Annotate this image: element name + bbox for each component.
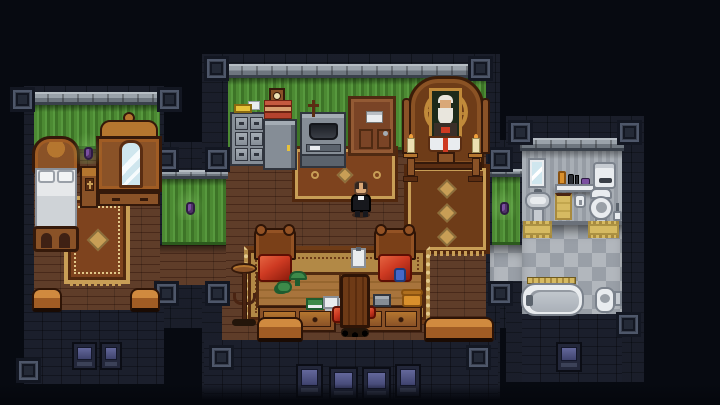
wall-sconce[interactable]	[84, 147, 93, 160]
blue-jar[interactable]	[394, 268, 406, 282]
copier-slot	[309, 123, 338, 140]
priest-leg	[355, 211, 360, 217]
bathroom-mirror	[528, 158, 546, 188]
window-glass	[561, 347, 577, 361]
clipboard-clip	[356, 247, 361, 251]
wardrobe[interactable]	[96, 112, 162, 208]
pillow	[57, 170, 74, 183]
drawer	[385, 311, 418, 327]
cistern[interactable]	[593, 162, 616, 189]
stand-base	[468, 176, 483, 182]
sink-basin	[525, 192, 551, 209]
mirror-glass	[532, 162, 542, 184]
bath-mat	[588, 221, 619, 238]
wall-tower	[16, 358, 41, 383]
drawer	[235, 132, 248, 145]
drawer-handle	[112, 198, 120, 201]
lamp-base	[295, 280, 300, 286]
door[interactable]	[348, 96, 396, 156]
priest-hair	[355, 182, 359, 189]
drawer	[250, 117, 263, 130]
bathroom-wall-cap	[520, 138, 624, 151]
bench[interactable]	[424, 317, 494, 342]
chair-casters	[341, 328, 369, 337]
wardrobe-drawer	[98, 192, 160, 206]
telephone[interactable]	[401, 289, 424, 308]
clipboard[interactable]	[351, 248, 366, 268]
cross-icon-arm	[87, 183, 93, 185]
copier-label	[310, 146, 320, 150]
window-sill	[105, 362, 117, 366]
rug-dot	[311, 171, 319, 179]
priest-collar	[358, 196, 364, 200]
wall-tower	[157, 87, 182, 112]
stand-hook	[247, 293, 256, 305]
bidet[interactable]	[595, 285, 622, 316]
paper-core	[579, 200, 582, 205]
wall-tower	[488, 147, 513, 172]
toilet-seat-hole	[596, 202, 607, 213]
hand-towel[interactable]	[555, 193, 572, 220]
paper-tray-stack[interactable]	[264, 100, 292, 120]
wall-tower	[10, 87, 35, 112]
candle-stand[interactable]	[402, 134, 419, 186]
wall-cross-icon-arm	[308, 104, 319, 107]
green-ledger[interactable]	[306, 298, 324, 310]
wall-tower	[508, 120, 533, 145]
bench[interactable]	[130, 288, 160, 312]
priest-character[interactable]	[348, 180, 374, 220]
footboard-arch	[41, 233, 52, 248]
cross-plaque	[85, 178, 94, 191]
bathtub[interactable]	[521, 283, 584, 316]
drawer	[250, 148, 263, 161]
cabinet-handle	[287, 145, 290, 151]
elder-portrait	[429, 88, 462, 140]
drawer	[235, 148, 248, 161]
wall-tower	[466, 345, 491, 370]
banker-lamp[interactable]	[289, 271, 309, 289]
desk-chair-front[interactable]	[332, 272, 376, 340]
photocopier[interactable]	[300, 112, 346, 168]
toiletry-bottle[interactable]	[558, 171, 566, 185]
bench[interactable]	[257, 317, 303, 342]
rug-medallion	[437, 179, 457, 199]
tub-basin	[529, 290, 579, 312]
window	[72, 342, 97, 370]
wall-tower	[209, 345, 234, 370]
wall-tower	[204, 56, 229, 81]
bed-footboard	[33, 226, 79, 252]
hat-stand[interactable]	[229, 263, 259, 335]
candle	[407, 138, 415, 153]
wall-tower	[205, 147, 230, 172]
tray	[264, 112, 292, 119]
toilet-paper[interactable]	[574, 194, 586, 208]
window-sill	[561, 363, 577, 367]
pedestal-sink[interactable]	[525, 189, 551, 225]
drawer	[250, 132, 263, 145]
candle	[472, 138, 480, 153]
tall-cabinet[interactable]	[263, 119, 297, 170]
window	[556, 342, 582, 372]
corridor-east-floor	[490, 245, 522, 281]
window-sill	[77, 362, 92, 366]
portrait-book	[441, 127, 450, 133]
lamp-shade	[289, 271, 307, 280]
wall-sconce[interactable]	[186, 202, 195, 215]
copier-base	[302, 154, 344, 166]
wall-sconce[interactable]	[500, 202, 509, 215]
chair-cushion	[258, 254, 292, 282]
bidet-hole	[600, 294, 610, 303]
wall-cross-icon	[312, 100, 315, 117]
window	[100, 342, 122, 370]
rug-dot	[373, 171, 381, 179]
clock-face	[273, 92, 281, 100]
game-viewport[interactable]	[0, 0, 720, 405]
toilet-brush[interactable]	[613, 203, 622, 221]
wall-tower	[205, 281, 230, 306]
stand-feet	[232, 319, 256, 326]
drawer	[235, 117, 248, 130]
window-glass	[77, 347, 92, 360]
rug-medallion	[437, 203, 457, 223]
chair-back	[340, 274, 370, 328]
pillow	[38, 170, 55, 183]
door-panel	[359, 129, 373, 149]
stand-column	[472, 158, 480, 176]
drawer-handle	[140, 198, 148, 201]
stand-base	[403, 176, 418, 182]
bottom-shadow-fade	[0, 384, 720, 405]
cistern-slot	[599, 178, 612, 183]
footboard-arch	[59, 233, 70, 248]
wall-tower	[617, 120, 642, 145]
corridor-west-floor	[160, 245, 226, 285]
bath-mat	[523, 221, 552, 238]
bench[interactable]	[32, 288, 62, 312]
wardrobe-mirror	[119, 140, 143, 188]
priest-leg	[363, 211, 368, 217]
priest-head	[354, 181, 368, 195]
priest-hair	[363, 182, 367, 189]
candle-stand[interactable]	[467, 134, 484, 186]
stand-hook	[233, 293, 242, 305]
rug-border-pattern	[74, 206, 120, 274]
bidet-tank	[614, 291, 622, 306]
drawer	[299, 311, 332, 327]
tub-faucet	[526, 295, 533, 306]
rug-medallion	[437, 227, 457, 247]
folder[interactable]	[234, 104, 252, 113]
window-glass	[105, 347, 117, 360]
door-knob	[383, 131, 388, 136]
wall-tower	[488, 281, 513, 306]
door-sign	[366, 111, 383, 123]
brush-cup	[613, 211, 622, 221]
stand-column	[407, 158, 415, 176]
phone-handset	[401, 289, 423, 296]
bedroom-wall-cap	[32, 92, 162, 105]
